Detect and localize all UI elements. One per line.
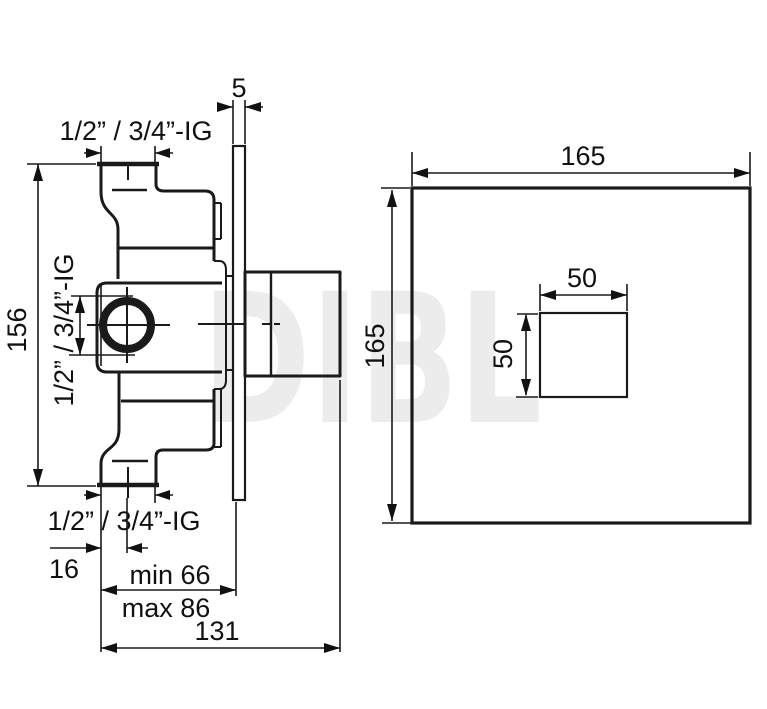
side-port-thread-label: 1/2” / 3/4”-IG bbox=[49, 253, 79, 406]
technical-drawing-page: DIBL bbox=[0, 0, 767, 709]
depth-min-label: min 66 bbox=[129, 560, 210, 590]
handle-width-label: 50 bbox=[567, 263, 597, 293]
handle-height-label: 50 bbox=[488, 339, 518, 369]
plate-height-label: 165 bbox=[360, 323, 390, 368]
plate-thickness-label: 5 bbox=[231, 73, 246, 103]
bottom-port-thread-label: 1/2” / 3/4”-IG bbox=[47, 506, 200, 536]
plate-width-label: 165 bbox=[560, 141, 605, 171]
port-offset-label: 16 bbox=[49, 554, 79, 584]
body-height-label: 156 bbox=[2, 307, 32, 352]
overall-depth-label: 131 bbox=[194, 616, 239, 646]
technical-drawing-svg: DIBL bbox=[0, 0, 767, 709]
top-port-thread-label: 1/2” / 3/4”-IG bbox=[59, 116, 212, 146]
